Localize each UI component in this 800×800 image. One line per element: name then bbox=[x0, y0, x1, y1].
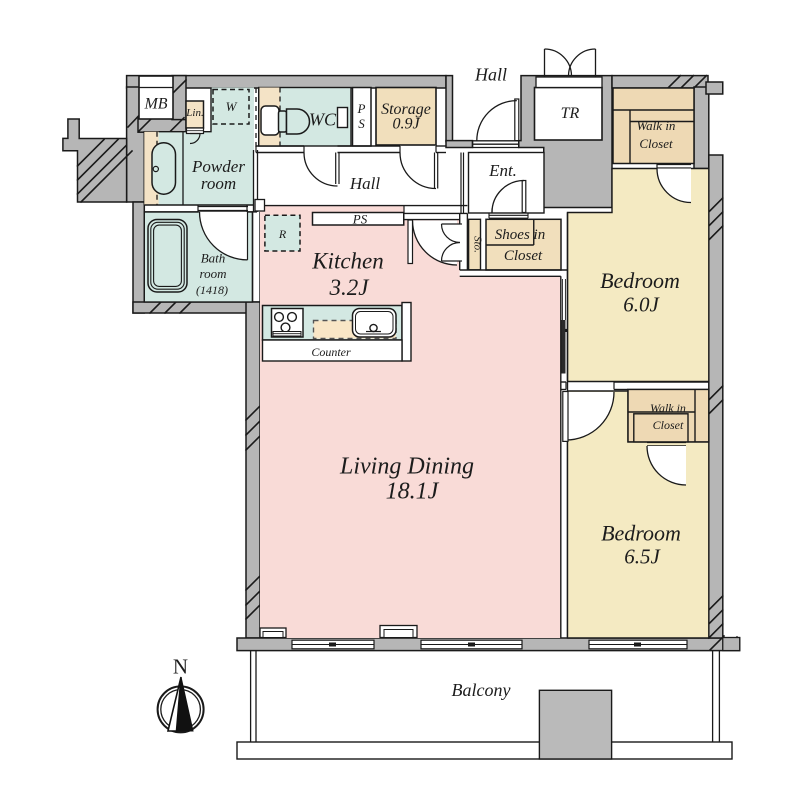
svg-text:Hall: Hall bbox=[349, 174, 381, 193]
svg-text:Living Dining: Living Dining bbox=[339, 454, 474, 480]
svg-text:R: R bbox=[278, 227, 287, 241]
svg-text:S: S bbox=[358, 116, 365, 131]
svg-text:3.2J: 3.2J bbox=[329, 275, 371, 300]
svg-text:Walk in: Walk in bbox=[637, 118, 676, 133]
svg-text:Closet: Closet bbox=[653, 418, 684, 432]
svg-text:room: room bbox=[200, 266, 227, 281]
svg-text:Kitchen: Kitchen bbox=[311, 249, 384, 274]
svg-text:PS: PS bbox=[352, 212, 368, 227]
svg-text:Bath: Bath bbox=[201, 251, 226, 266]
svg-text:Lin.: Lin. bbox=[185, 107, 203, 119]
svg-text:6.5J: 6.5J bbox=[624, 545, 661, 569]
svg-text:Walk in: Walk in bbox=[650, 401, 686, 415]
svg-text:18.1J: 18.1J bbox=[386, 479, 440, 505]
svg-text:Sto.: Sto. bbox=[472, 236, 484, 253]
svg-text:W: W bbox=[226, 99, 238, 114]
svg-text:Bedroom: Bedroom bbox=[600, 268, 680, 293]
svg-text:Bedroom: Bedroom bbox=[601, 521, 681, 546]
svg-text:P: P bbox=[357, 101, 366, 116]
svg-text:Counter: Counter bbox=[311, 345, 351, 359]
svg-text:Hall: Hall bbox=[474, 65, 507, 85]
svg-text:WC: WC bbox=[309, 110, 337, 130]
svg-text:Closet: Closet bbox=[639, 136, 673, 151]
svg-text:Shoes in: Shoes in bbox=[495, 227, 545, 243]
svg-text:Closet: Closet bbox=[504, 248, 543, 264]
svg-text:Ent.: Ent. bbox=[488, 161, 517, 180]
svg-text:MB: MB bbox=[143, 96, 167, 113]
svg-text:(1418): (1418) bbox=[196, 283, 228, 297]
svg-text:N: N bbox=[173, 655, 188, 679]
svg-text:TR: TR bbox=[561, 105, 580, 122]
svg-text:6.0J: 6.0J bbox=[623, 293, 660, 317]
svg-text:Balcony: Balcony bbox=[452, 680, 511, 700]
svg-text:0.9J: 0.9J bbox=[392, 116, 420, 133]
svg-text:room: room bbox=[201, 174, 236, 193]
